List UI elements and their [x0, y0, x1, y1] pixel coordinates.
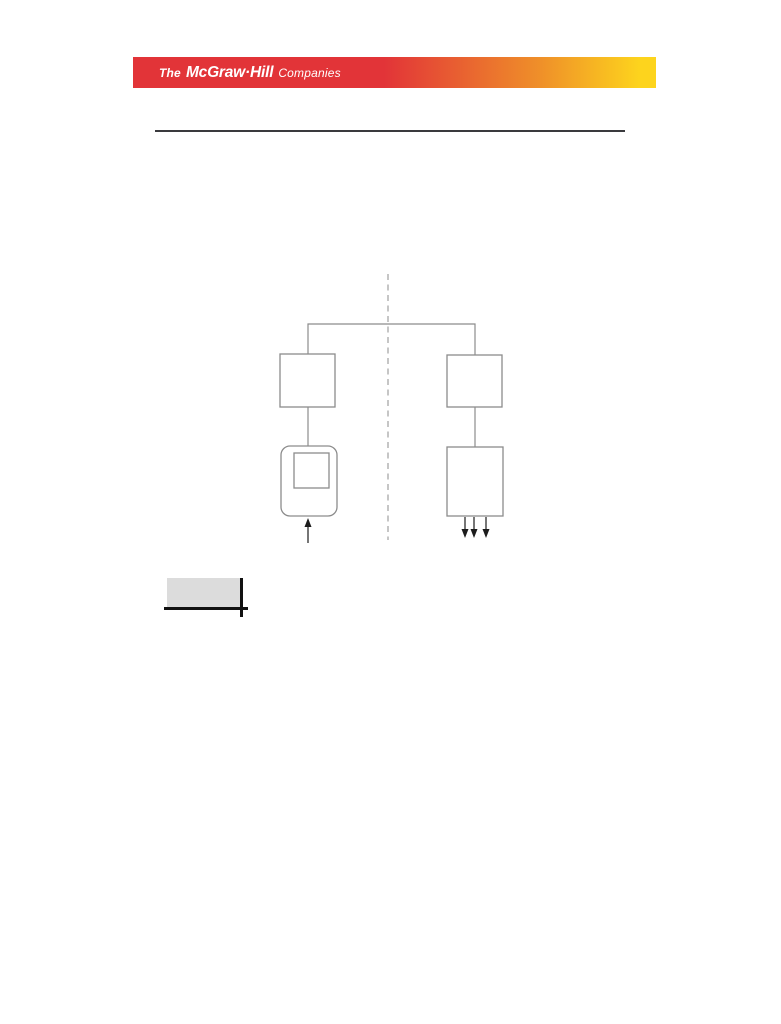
left-top-box	[280, 354, 335, 407]
output-arrow-down-2	[471, 517, 478, 538]
right-top-box	[447, 355, 502, 407]
caption-bottom-rule	[164, 607, 248, 610]
caption-right-rule	[240, 578, 243, 617]
top-connector	[308, 324, 475, 355]
left-inner-square	[294, 453, 329, 488]
caption-box	[167, 578, 241, 608]
document-page: The McGraw·Hill Companies	[0, 0, 781, 1024]
right-bottom-box	[447, 447, 503, 516]
block-diagram	[0, 0, 781, 1024]
output-arrow-down-3	[483, 517, 490, 538]
output-arrow-down-1	[462, 517, 469, 538]
input-arrow-up	[305, 518, 312, 543]
